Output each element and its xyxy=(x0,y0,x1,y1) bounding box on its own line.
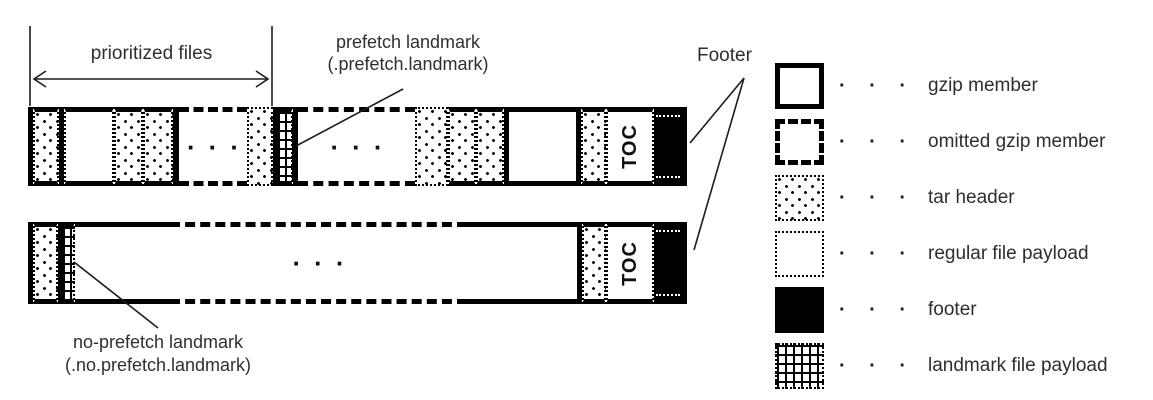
tar-header-segment xyxy=(114,107,143,186)
estargz-archive-format-diagram: prioritized files prefetch landmark (.pr… xyxy=(0,0,1153,400)
legend-item-footer: · · ·footer xyxy=(775,287,1108,333)
legend-item-label: regular file payload xyxy=(928,243,1089,265)
legend-separator-dots: · · · xyxy=(824,75,916,98)
border-segment xyxy=(682,107,687,186)
prioritized-files-label: prioritized files xyxy=(30,43,273,65)
tar-header-segment xyxy=(582,222,606,304)
legend-item-label: landmark file payload xyxy=(928,355,1108,377)
no-prefetch-landmark-label-line2: (.no.prefetch.landmark) xyxy=(32,354,284,377)
bottom-archive-bar: ···TOC xyxy=(28,222,687,304)
legend-swatch-landmark-file-payload-icon xyxy=(775,343,824,389)
tar-header-segment xyxy=(33,107,59,186)
legend-item-gzip-member: · · ·gzip member xyxy=(775,63,1108,109)
tar-header-segment xyxy=(476,107,504,186)
no-prefetch-landmark-label-line1: no-prefetch landmark xyxy=(32,331,284,354)
omitted-segment: ··· xyxy=(170,222,467,304)
tar-header-segment xyxy=(247,107,273,186)
tar-header-segment xyxy=(448,107,476,186)
toc-label: TOC xyxy=(619,124,642,169)
tar-header-segment xyxy=(415,107,448,186)
footer-segment xyxy=(654,222,682,304)
omitted-segment: ··· xyxy=(298,107,415,186)
legend-swatch-regular-file-payload-icon xyxy=(775,231,824,277)
landmark-segment xyxy=(278,107,293,186)
legend-swatch-tar-header-icon xyxy=(775,175,824,221)
prefetch-landmark-label: prefetch landmark (.prefetch.landmark) xyxy=(300,31,516,75)
toc-segment: TOC xyxy=(606,222,654,304)
legend-item-regular-file-payload: · · ·regular file payload xyxy=(775,231,1108,277)
arrowhead-right-icon xyxy=(256,71,268,87)
legend-item-label: footer xyxy=(928,299,977,321)
tar-header-segment xyxy=(581,107,606,186)
legend-swatch-footer-icon xyxy=(775,287,824,333)
legend-item-label: omitted gzip member xyxy=(928,131,1105,153)
top-archive-bar: ······TOC xyxy=(28,107,687,186)
tar-header-segment xyxy=(33,222,58,304)
landmark-segment xyxy=(63,222,75,304)
payload-segment xyxy=(64,107,114,186)
member-segment xyxy=(467,222,577,304)
legend-separator-dots: · · · xyxy=(824,243,916,266)
member-segment xyxy=(509,107,576,186)
legend-item-label: gzip member xyxy=(928,75,1038,97)
legend-separator-dots: · · · xyxy=(824,131,916,154)
prefetch-landmark-label-line2: (.prefetch.landmark) xyxy=(300,53,516,75)
footer-pointer-line-bottom xyxy=(694,78,744,250)
arrowhead-left-icon xyxy=(34,71,46,87)
no-prefetch-landmark-label: no-prefetch landmark (.no.prefetch.landm… xyxy=(32,331,284,377)
legend-item-tar-header: · · ·tar header xyxy=(775,175,1108,221)
legend-swatch-omitted-gzip-member-icon xyxy=(775,119,824,165)
footer-segment xyxy=(654,107,682,186)
legend: · · ·gzip member· · ·omitted gzip member… xyxy=(775,63,1108,389)
omitted-segment: ··· xyxy=(179,107,247,186)
footer-pointer-line-top xyxy=(690,78,744,143)
footer-label: Footer xyxy=(697,45,752,67)
legend-item-landmark-file-payload: · · ·landmark file payload xyxy=(775,343,1108,389)
legend-swatch-gzip-member-icon xyxy=(775,63,824,109)
legend-separator-dots: · · · xyxy=(824,299,916,322)
member-segment xyxy=(75,222,170,304)
prefetch-landmark-label-line1: prefetch landmark xyxy=(300,31,516,53)
toc-label: TOC xyxy=(619,241,642,286)
legend-item-omitted-gzip-member: · · ·omitted gzip member xyxy=(775,119,1108,165)
tar-header-segment xyxy=(143,107,173,186)
legend-item-label: tar header xyxy=(928,187,1015,209)
legend-separator-dots: · · · xyxy=(824,355,916,378)
toc-segment: TOC xyxy=(606,107,654,186)
border-segment xyxy=(682,222,687,304)
legend-separator-dots: · · · xyxy=(824,187,916,210)
